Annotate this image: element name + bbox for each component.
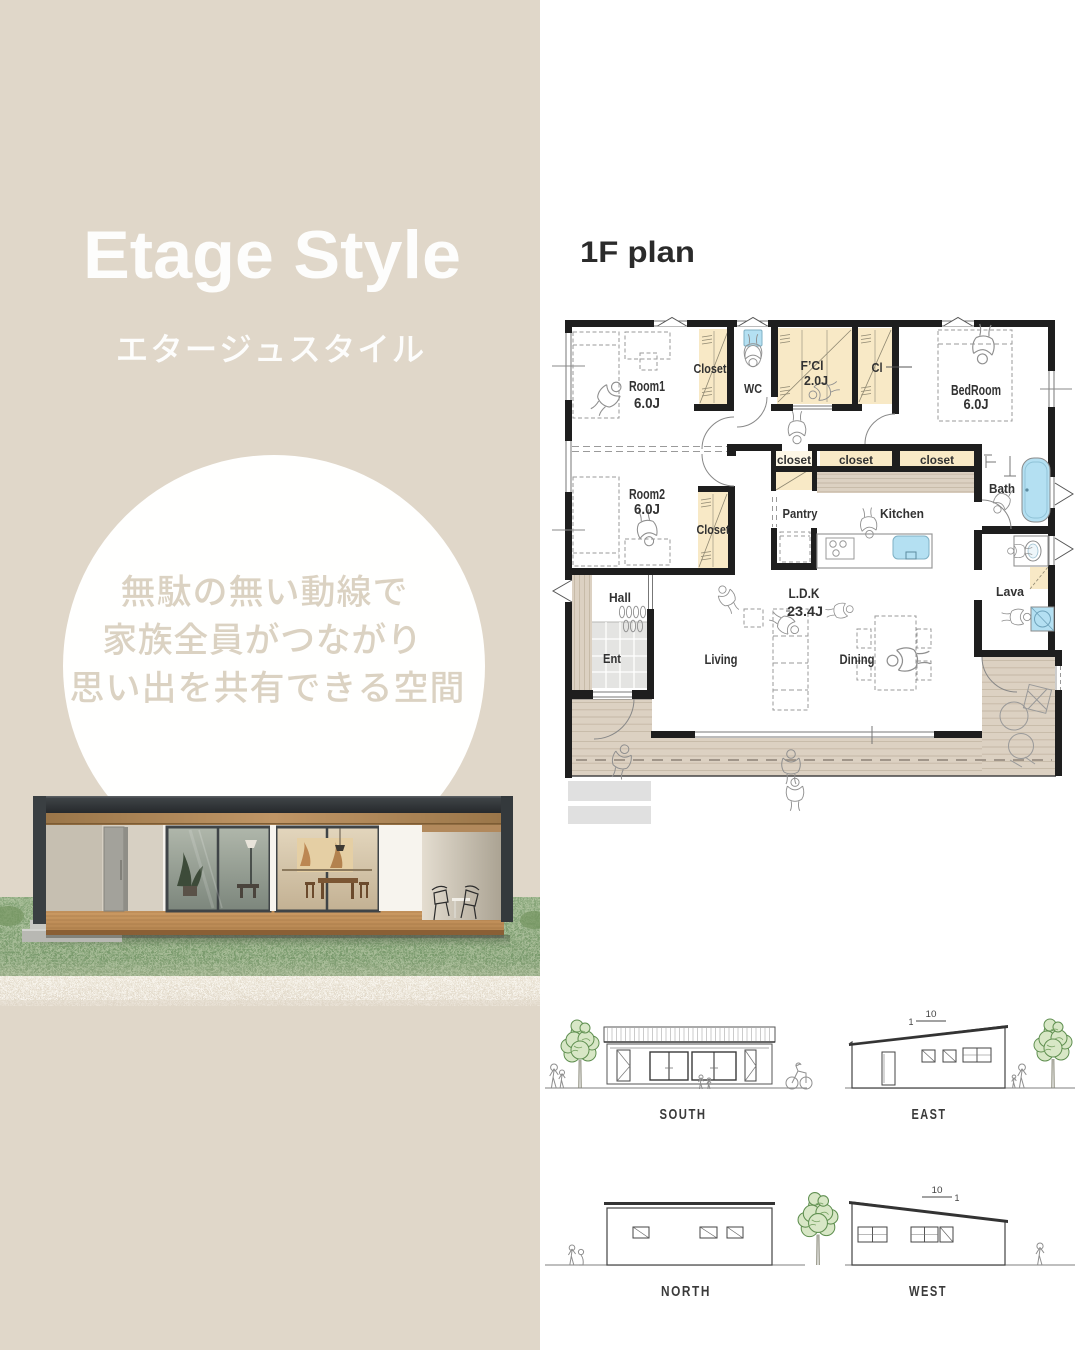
svg-text:Bath: Bath bbox=[989, 481, 1015, 496]
svg-text:Lava: Lava bbox=[996, 584, 1025, 599]
svg-text:Etage Style: Etage Style bbox=[83, 217, 461, 293]
svg-text:23.4J: 23.4J bbox=[787, 604, 823, 619]
svg-text:6.0J: 6.0J bbox=[634, 502, 660, 518]
svg-text:Cl: Cl bbox=[872, 361, 883, 375]
svg-text:WEST: WEST bbox=[909, 1283, 947, 1300]
svg-text:NORTH: NORTH bbox=[661, 1283, 711, 1300]
svg-text:6.0J: 6.0J bbox=[964, 397, 989, 413]
svg-text:closet: closet bbox=[920, 453, 954, 467]
svg-text:Room2: Room2 bbox=[629, 487, 665, 503]
svg-text:10: 10 bbox=[926, 1009, 937, 1019]
svg-text:Living: Living bbox=[705, 652, 738, 667]
svg-text:F’Cl: F’Cl bbox=[801, 359, 824, 373]
svg-text:10: 10 bbox=[932, 1185, 943, 1195]
svg-text:EAST: EAST bbox=[912, 1106, 947, 1123]
svg-text:1F plan: 1F plan bbox=[580, 236, 695, 269]
svg-text:WC: WC bbox=[744, 381, 762, 396]
svg-text:closet: closet bbox=[777, 453, 811, 467]
svg-text:Dining: Dining bbox=[840, 652, 875, 667]
svg-text:Ent: Ent bbox=[603, 651, 622, 666]
svg-text:Hall: Hall bbox=[609, 590, 631, 605]
svg-text:1: 1 bbox=[909, 1017, 914, 1027]
svg-text:1: 1 bbox=[955, 1193, 960, 1203]
svg-text:Kitchen: Kitchen bbox=[880, 506, 924, 521]
svg-text:L.D.K: L.D.K bbox=[789, 586, 820, 601]
svg-text:Pantry: Pantry bbox=[783, 506, 819, 521]
svg-text:6.0J: 6.0J bbox=[634, 396, 660, 412]
svg-text:Room1: Room1 bbox=[629, 379, 665, 395]
svg-text:Closet: Closet bbox=[694, 362, 728, 376]
svg-text:2.0J: 2.0J bbox=[804, 374, 828, 388]
svg-text:SOUTH: SOUTH bbox=[660, 1106, 707, 1123]
svg-text:Closet: Closet bbox=[697, 523, 731, 537]
svg-text:closet: closet bbox=[839, 453, 873, 467]
